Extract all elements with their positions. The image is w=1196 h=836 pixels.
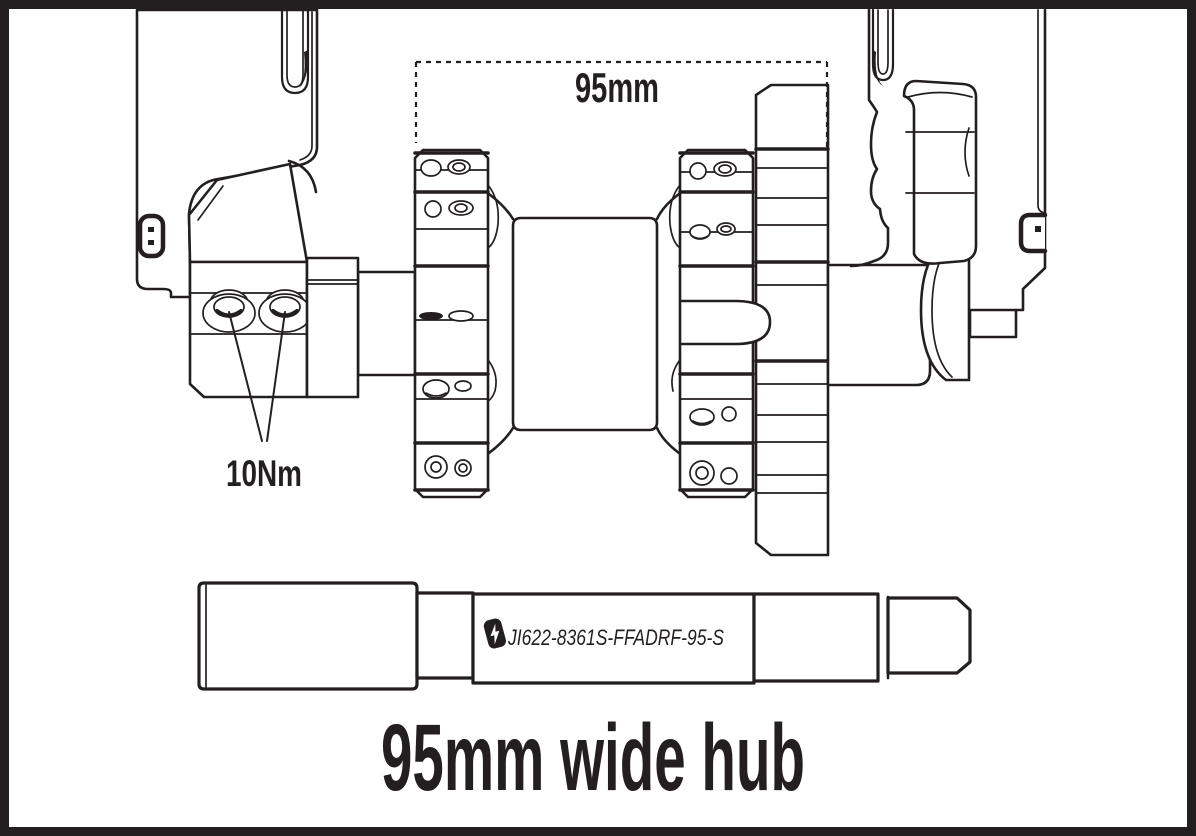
axle-collar (417, 593, 473, 678)
axle-end-left (358, 272, 415, 375)
axle-part-number: JI622-8361S-FFADRF-95-S (507, 625, 724, 650)
dimension-label: 95mm (575, 64, 659, 111)
hub-technical-drawing: 95mm 10Nm JI622-8361S-FFADRF-95-S 95mm w… (0, 0, 1196, 836)
flange-slot (682, 301, 770, 344)
crown-block-right (828, 265, 930, 385)
cable-port-right-icon (1021, 215, 1045, 251)
thru-axle: JI622-8361S-FFADRF-95-S (199, 583, 970, 689)
leg-panel-right (904, 81, 976, 264)
dropout-tab-left (307, 258, 358, 397)
torque-label: 10Nm (226, 453, 302, 494)
page-title: 95mm wide hub (381, 705, 805, 811)
axle-head (199, 583, 417, 689)
axle-thread-tip (888, 598, 970, 673)
diagram-page: 95mm 10Nm JI622-8361S-FFADRF-95-S 95mm w… (0, 0, 1196, 836)
axle-section (754, 594, 878, 681)
hub-flange-left (415, 150, 498, 497)
hub-barrel (489, 194, 679, 453)
cable-port-left-icon (140, 216, 163, 256)
